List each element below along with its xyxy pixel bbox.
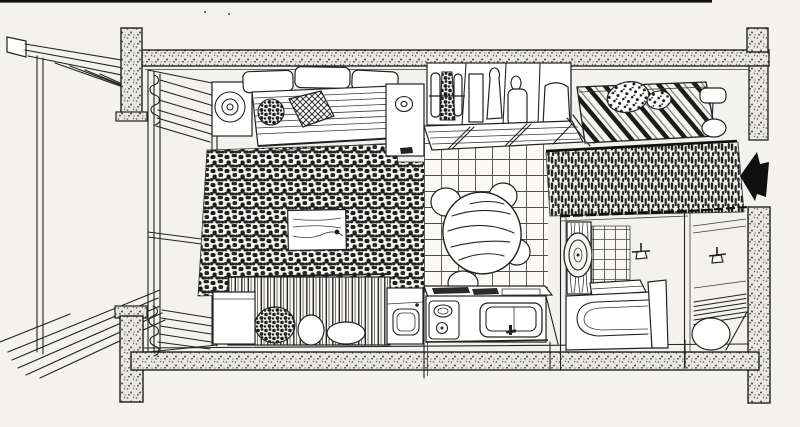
white-pillow bbox=[327, 322, 365, 344]
floor-plan-illustration bbox=[0, 0, 800, 427]
column-top-left bbox=[121, 28, 142, 114]
sink bbox=[480, 303, 542, 337]
photo-top-edge bbox=[0, 0, 712, 3]
hanging-garment bbox=[487, 68, 502, 119]
floor-plan-sketch bbox=[0, 0, 800, 427]
hallway-carpet bbox=[546, 142, 744, 216]
oval-mirror bbox=[564, 233, 592, 277]
column-bottom-right bbox=[748, 207, 770, 403]
right-wall-upper bbox=[749, 66, 768, 140]
column-top-right bbox=[747, 28, 768, 52]
closet bbox=[424, 63, 594, 150]
side-cabinet bbox=[386, 84, 424, 156]
hanging-garment bbox=[431, 73, 440, 117]
hanging-jacket bbox=[543, 83, 570, 126]
cabinet-mark bbox=[400, 147, 413, 154]
counter-grill bbox=[472, 288, 499, 295]
nightstand bbox=[213, 292, 255, 344]
speckled-pillow bbox=[255, 307, 295, 343]
bed-lower bbox=[213, 274, 390, 345]
bottom-beam bbox=[131, 352, 759, 370]
tub-rim bbox=[648, 280, 668, 348]
washing-machine bbox=[387, 288, 423, 344]
tiled-wall bbox=[592, 226, 630, 283]
round-pillow bbox=[258, 99, 284, 125]
hanging-garment bbox=[508, 89, 527, 126]
white-pillow bbox=[298, 315, 324, 345]
hanging-garment bbox=[454, 74, 462, 116]
counter-grill bbox=[432, 287, 470, 294]
basin-stool bbox=[692, 318, 730, 350]
back-cushion bbox=[295, 67, 350, 89]
back-cushion bbox=[243, 70, 294, 93]
low-table bbox=[288, 209, 347, 250]
bed-upper bbox=[577, 78, 726, 143]
closet-panel bbox=[469, 74, 483, 122]
column-top-left-footing bbox=[116, 112, 147, 121]
